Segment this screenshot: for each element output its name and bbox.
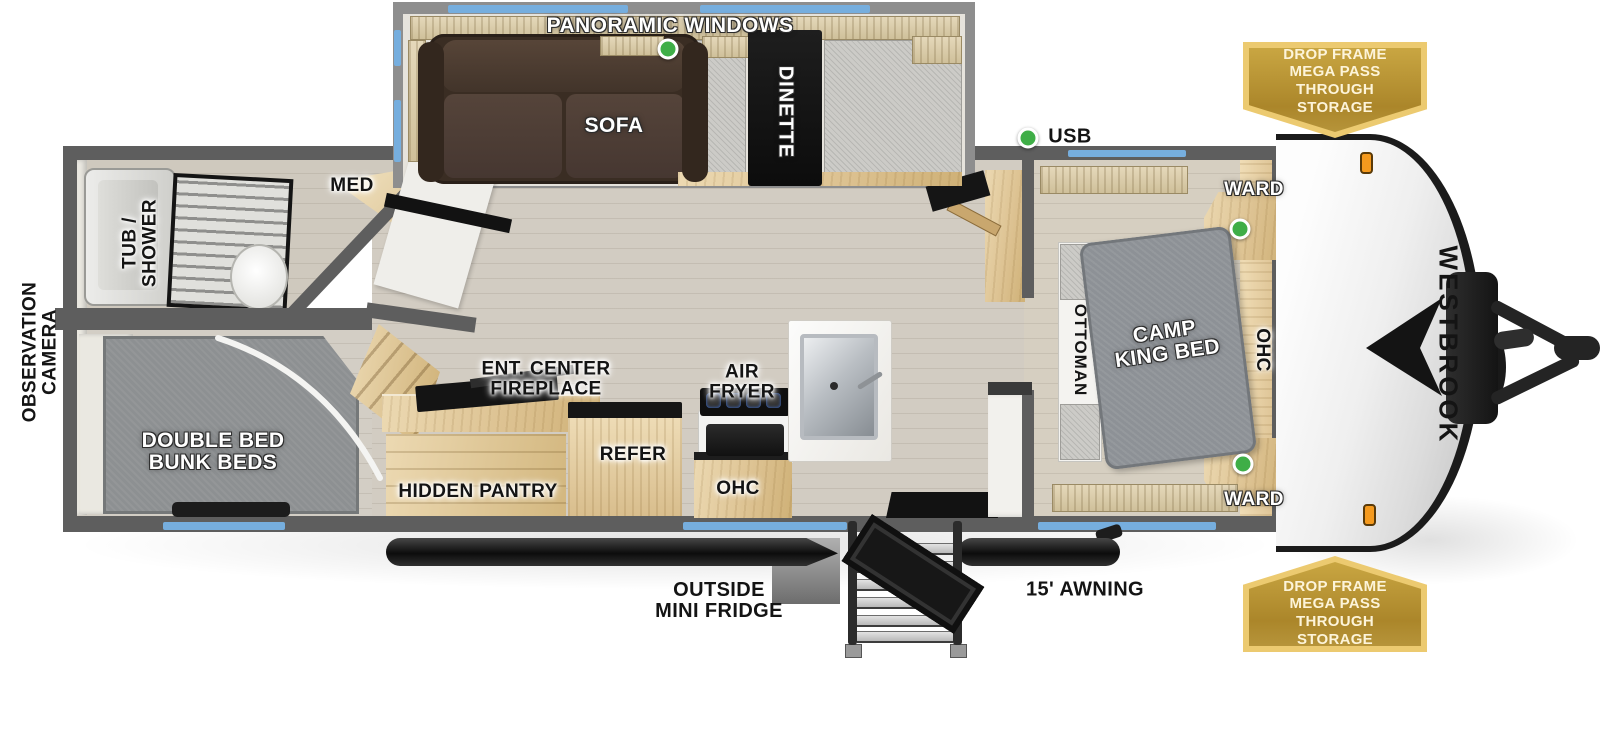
drop-frame-storage-badge-bottom: DROP FRAME MEGA PASS THROUGH STORAGE bbox=[1243, 556, 1427, 652]
brand-name-label: WESTBROOK bbox=[1434, 246, 1461, 445]
wall-top-left bbox=[63, 146, 395, 160]
awning-label: 15' AWNING bbox=[1026, 580, 1144, 601]
wardrobe-by-dinette bbox=[985, 170, 1025, 302]
hidden-pantry-cabinet bbox=[386, 434, 566, 518]
sofa-seat-left bbox=[444, 94, 562, 178]
window-slideout-side-1 bbox=[394, 30, 401, 66]
sofa-arm-right bbox=[682, 42, 708, 182]
panoramic-windows-label: PANORAMIC WINDOWS bbox=[547, 15, 794, 37]
usb-indicator-dot bbox=[1018, 128, 1039, 149]
ottoman-cushion-bottom bbox=[1060, 404, 1100, 460]
badge-label: DROP FRAME MEGA PASS THROUGH STORAGE bbox=[1249, 48, 1421, 132]
bedroom-wall-lower bbox=[1022, 390, 1034, 518]
hidden-pantry-label: HIDDEN PANTRY bbox=[398, 482, 557, 502]
marker-light-top bbox=[1360, 152, 1373, 174]
med-label: MED bbox=[330, 176, 373, 196]
curtain-mid bbox=[600, 36, 664, 56]
sink-drain bbox=[830, 382, 838, 390]
window-slideout-side-2 bbox=[394, 100, 401, 162]
kitchen-ohc-label: OHC bbox=[716, 479, 759, 499]
toilet bbox=[230, 244, 288, 310]
refrigerator bbox=[568, 418, 682, 518]
observation-camera-label: OBSERVATION CAMERA bbox=[20, 282, 60, 423]
marker-light-bottom bbox=[1363, 504, 1376, 526]
outside-mini-fridge-label: OUTSIDE MINI FRIDGE bbox=[655, 580, 783, 622]
ottoman-label: OTTOMAN bbox=[1071, 304, 1089, 397]
window-living-bottom bbox=[683, 522, 847, 530]
ward-top-indicator-dot bbox=[1230, 219, 1251, 240]
oven-door bbox=[706, 424, 784, 456]
window-bedroom-bottom bbox=[1038, 522, 1216, 530]
awning-tube-left bbox=[386, 538, 838, 566]
bunk-beds-label: DOUBLE BED BUNK BEDS bbox=[142, 430, 285, 474]
drop-frame-storage-badge-top: DROP FRAME MEGA PASS THROUGH STORAGE bbox=[1243, 42, 1427, 138]
floorplan-diagram: DROP FRAME MEGA PASS THROUGH STORAGE DRO… bbox=[0, 0, 1600, 734]
sofa-label: SOFA bbox=[585, 115, 644, 137]
ent-center-label: ENT. CENTER FIREPLACE bbox=[482, 359, 611, 399]
awning-tube-right bbox=[958, 538, 1120, 566]
usb-label: USB bbox=[1048, 127, 1091, 148]
step-foot-left bbox=[845, 644, 862, 658]
curtain-dinette-left bbox=[702, 36, 752, 58]
entry-door-mat bbox=[886, 492, 998, 518]
hitch-coupler bbox=[1493, 327, 1535, 350]
dinette-label: DINETTE bbox=[775, 66, 796, 159]
ward-bottom-label: WARD bbox=[1224, 490, 1284, 510]
curtain-dinette-right bbox=[912, 36, 962, 64]
refer-label: REFER bbox=[600, 445, 666, 465]
brand-arrow-logo bbox=[1364, 296, 1442, 396]
step-tread-6 bbox=[857, 631, 953, 643]
hitch-tongue bbox=[1554, 336, 1600, 360]
ward-bottom-indicator-dot bbox=[1233, 454, 1254, 475]
step-foot-right bbox=[950, 644, 967, 658]
window-bunk-bottom bbox=[163, 522, 285, 530]
window-slideout-top-left bbox=[448, 5, 628, 13]
badge-label: DROP FRAME MEGA PASS THROUGH STORAGE bbox=[1249, 562, 1421, 646]
air-fryer-label: AIR FRYER bbox=[709, 362, 775, 402]
tub-shower-label: TUB / SHOWER bbox=[120, 199, 160, 287]
window-bedroom-top bbox=[1068, 150, 1186, 157]
entry-cabinet-top bbox=[988, 382, 1032, 395]
bedroom-valance-top bbox=[1040, 166, 1188, 194]
bunk-cushion bbox=[172, 502, 290, 517]
kitchen-sink bbox=[800, 334, 878, 440]
panoramic-windows-indicator-dot bbox=[658, 39, 679, 60]
window-slideout-top-right bbox=[700, 5, 870, 13]
bath-bunk-divider bbox=[55, 308, 372, 330]
bedroom-wall-upper bbox=[1022, 158, 1034, 298]
bedroom-valance-bottom bbox=[1052, 484, 1238, 512]
bedroom-ohc-label: OHC bbox=[1252, 328, 1272, 371]
wall-rear bbox=[63, 146, 77, 532]
sofa-arm-left bbox=[418, 42, 444, 182]
ward-top-label: WARD bbox=[1224, 180, 1284, 200]
